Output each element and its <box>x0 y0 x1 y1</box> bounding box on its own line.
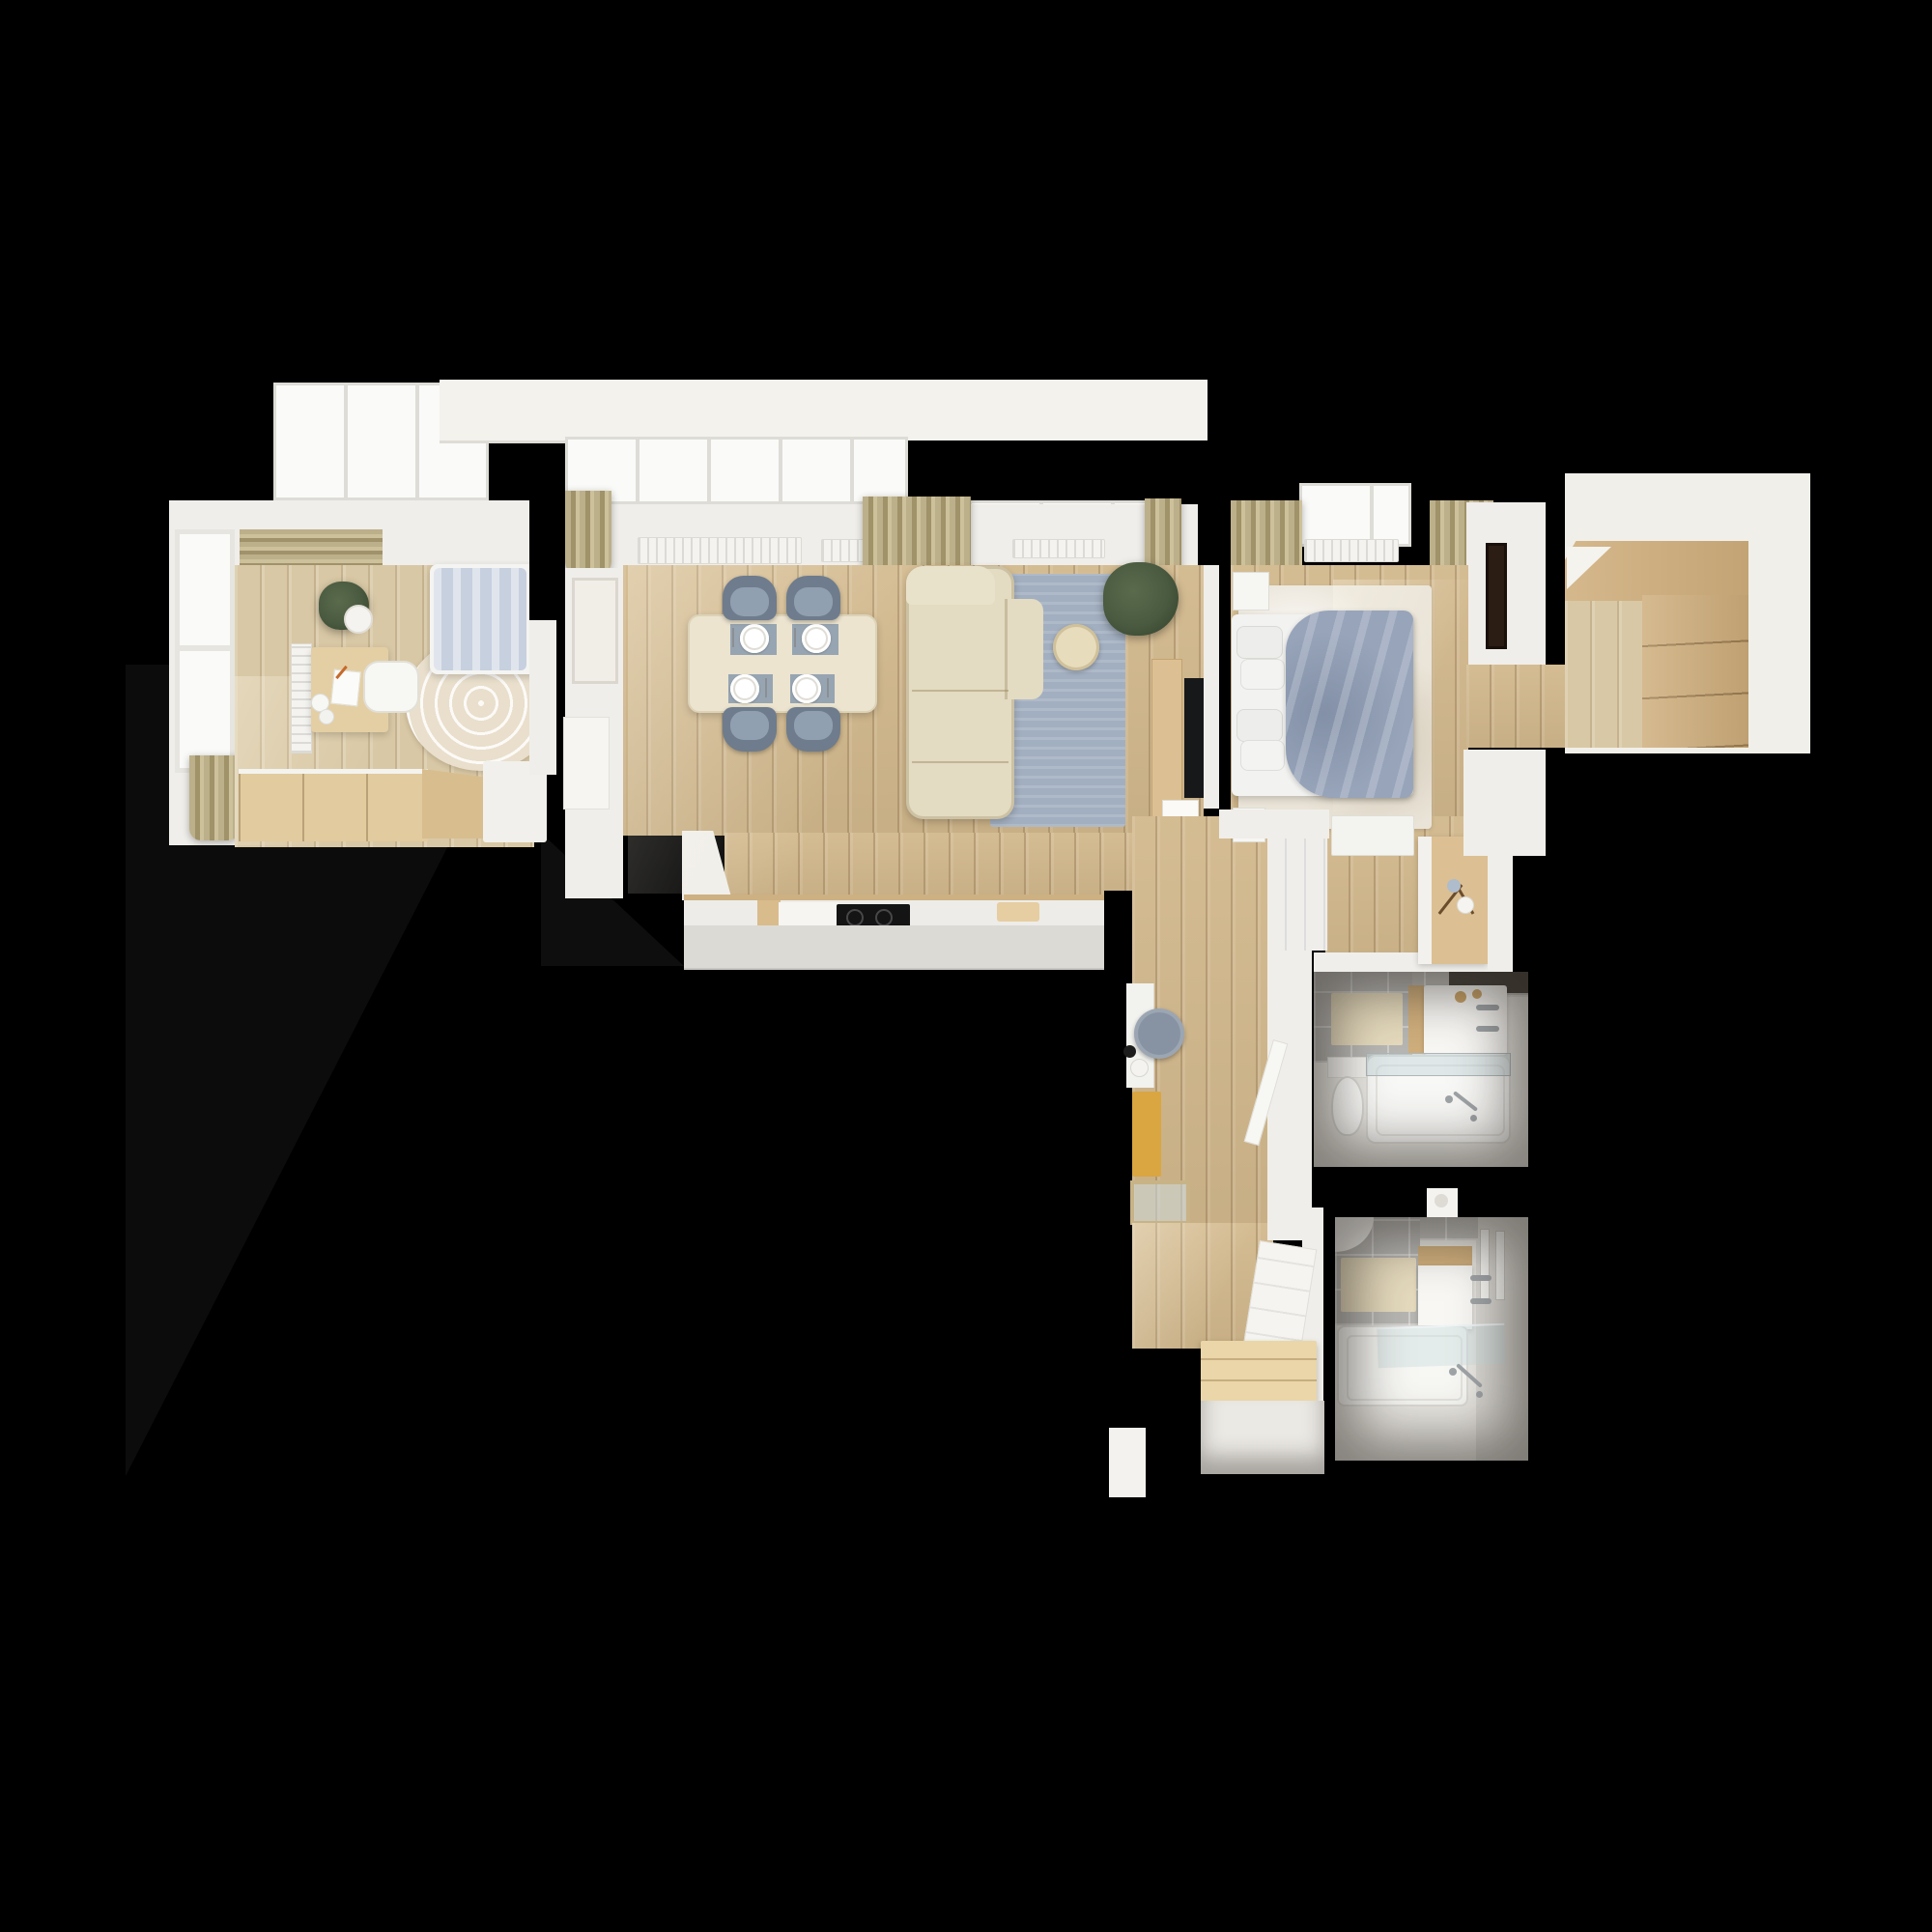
towel-rail <box>1495 1231 1505 1300</box>
floor-plan-render <box>0 0 1932 1932</box>
paper-roll <box>1435 1194 1448 1207</box>
vanity-wood-top <box>1418 1246 1472 1265</box>
bath-mat <box>1341 1258 1416 1312</box>
glass-screen <box>1377 1323 1505 1369</box>
faucet <box>1470 1298 1492 1304</box>
room-bathroom-2 <box>0 0 1932 1932</box>
vanity-sink <box>1418 1265 1472 1329</box>
shower-fixture <box>1476 1391 1483 1398</box>
bathroom-2 <box>1335 1217 1528 1461</box>
faucet <box>1470 1275 1492 1281</box>
towel-rail <box>1480 1229 1490 1302</box>
shower-fixture <box>1449 1368 1457 1376</box>
